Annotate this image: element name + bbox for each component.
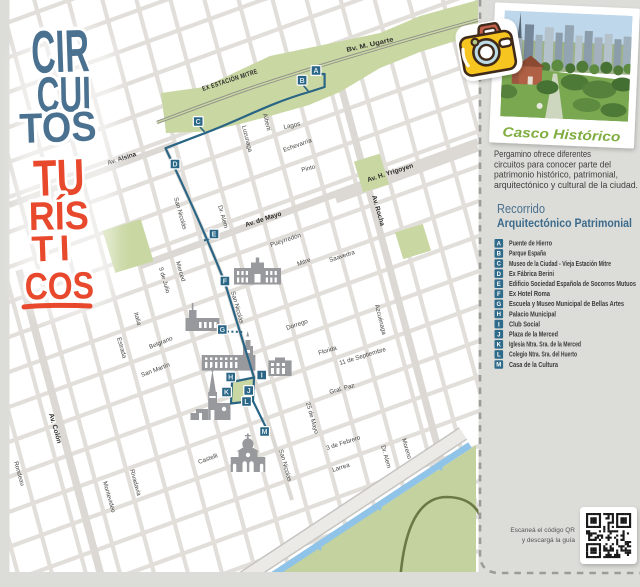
svg-text:E: E — [212, 232, 217, 239]
svg-text:patrimonio histórico, patrimon: patrimonio histórico, patrimonial, — [494, 170, 618, 180]
svg-text:C: C — [196, 119, 201, 126]
svg-text:COS: COS — [24, 265, 94, 308]
svg-text:Ex Fábrica Berini: Ex Fábrica Berini — [509, 271, 554, 278]
svg-text:F: F — [497, 292, 501, 298]
svg-text:F: F — [223, 279, 228, 286]
svg-text:Colegio Ntra. Sra. del Huerto: Colegio Ntra. Sra. del Huerto — [509, 352, 577, 359]
svg-text:Edificio Sociedad Española de: Edificio Sociedad Española de Socorros M… — [509, 281, 636, 288]
svg-text:Recorrido: Recorrido — [497, 202, 545, 216]
svg-text:M: M — [262, 429, 268, 436]
svg-text:Escuela y Museo Municipal de B: Escuela y Museo Municipal de Bellas Arte… — [509, 301, 624, 308]
svg-text:A: A — [497, 242, 502, 248]
svg-text:B: B — [300, 78, 305, 85]
svg-text:K: K — [224, 390, 229, 397]
svg-text:I: I — [261, 373, 263, 380]
svg-text:Plaza de la Merced: Plaza de la Merced — [509, 332, 558, 339]
svg-text:Club Social: Club Social — [509, 321, 540, 328]
svg-text:Casa de la Cultura: Casa de la Cultura — [509, 362, 558, 369]
svg-text:TOS: TOS — [19, 104, 98, 153]
svg-text:Ex Hotel Roma: Ex Hotel Roma — [509, 291, 550, 298]
svg-text:Palacio Municipal: Palacio Municipal — [509, 311, 556, 318]
svg-text:L: L — [497, 353, 501, 359]
svg-text:Iglesia Ntra. Sra. de la Merce: Iglesia Ntra. Sra. de la Merced — [509, 342, 581, 349]
svg-text:Escaneá el código QR: Escaneá el código QR — [510, 527, 575, 534]
svg-text:E: E — [497, 282, 501, 288]
svg-text:Arquitectónico Patrimonial: Arquitectónico Patrimonial — [497, 216, 632, 230]
svg-text:H: H — [497, 312, 501, 318]
svg-text:A: A — [313, 68, 318, 75]
svg-text:M: M — [496, 363, 501, 369]
svg-text:G: G — [220, 327, 226, 334]
svg-text:y descargá la guía: y descargá la guía — [522, 537, 576, 544]
svg-text:C: C — [497, 262, 502, 268]
svg-text:Museo de la Ciudad - Vieja Est: Museo de la Ciudad - Vieja Estación Mitr… — [509, 261, 611, 268]
svg-text:arquitectónico y cultural de l: arquitectónico y cultural de la ciudad. — [494, 180, 638, 190]
svg-text:L: L — [244, 399, 249, 406]
svg-text:J: J — [497, 332, 500, 338]
svg-text:TI: TI — [31, 227, 76, 270]
svg-text:K: K — [497, 343, 502, 349]
svg-text:Puente de Hierro: Puente de Hierro — [509, 241, 552, 248]
svg-text:Pergamino ofrece diferentes: Pergamino ofrece diferentes — [494, 149, 591, 159]
svg-text:H: H — [228, 375, 233, 382]
svg-text:circuitos para conocer parte d: circuitos para conocer parte del — [494, 159, 611, 169]
svg-text:J: J — [247, 388, 251, 395]
svg-text:D: D — [497, 272, 502, 278]
svg-text:G: G — [496, 302, 501, 308]
svg-text:B: B — [497, 252, 502, 258]
svg-text:Parque España: Parque España — [509, 251, 546, 258]
svg-text:D: D — [172, 162, 177, 169]
